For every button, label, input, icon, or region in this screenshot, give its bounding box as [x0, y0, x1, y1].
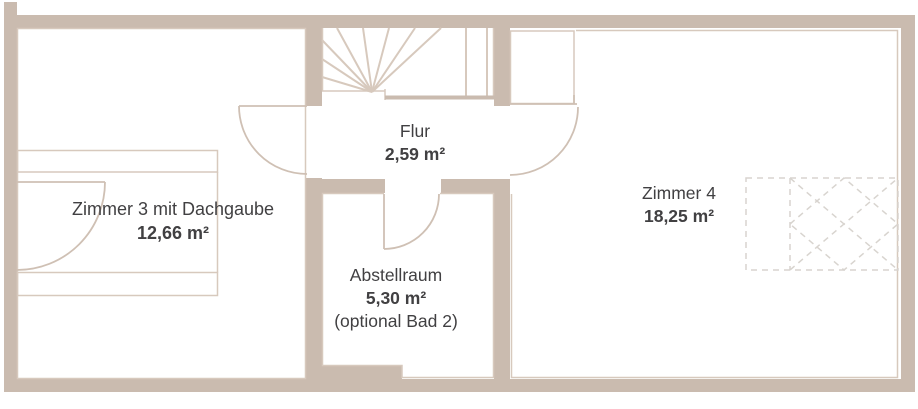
wall-flur-abstellraum-left: [306, 179, 385, 193]
roof-window-cross: [790, 178, 898, 270]
room-label-flur: Flur 2,59 m²: [385, 120, 445, 166]
wall-zimmer3-abstellraum: [306, 178, 322, 379]
room-area-abstellraum: 5,30 m²: [334, 287, 458, 310]
room-name-zimmer4: Zimmer 4: [642, 182, 716, 205]
wall-top: [4, 15, 915, 28]
staircase: [322, 28, 498, 100]
room-label-abstellraum: Abstellraum 5,30 m² (optional Bad 2): [334, 264, 458, 333]
room-label-zimmer3: Zimmer 3 mit Dachgaube 12,66 m²: [72, 198, 274, 246]
outer-walls: [4, 2, 915, 392]
stair-treads: [322, 28, 487, 97]
room-name-abstellraum: Abstellraum: [334, 264, 458, 287]
wall-abstellraum-zimmer4: [494, 182, 510, 379]
outline-landing-nook: [511, 31, 575, 104]
wall-left: [4, 2, 17, 392]
room-area-zimmer4: 18,25 m²: [642, 205, 716, 228]
wall-stair-left: [306, 28, 322, 106]
floor-plan: Flur 2,59 m² Zimmer 3 mit Dachgaube 12,6…: [0, 0, 918, 409]
wall-bottom: [4, 379, 915, 392]
door-abstellraum: [384, 194, 439, 249]
wall-stair-right: [494, 28, 510, 106]
door-zimmer4: [510, 95, 578, 175]
room-note-abstellraum: (optional Bad 2): [334, 310, 458, 333]
room-label-zimmer4: Zimmer 4 18,25 m²: [642, 182, 716, 228]
stair-lower-edge: [322, 89, 385, 100]
dormer-strip-bottom: [18, 273, 218, 296]
dormer-strip-top: [18, 151, 218, 173]
room-area-zimmer3: 12,66 m²: [72, 222, 274, 246]
roof-window-symbol: [746, 178, 898, 270]
door-zimmer3-flur: [239, 106, 307, 174]
wall-flur-abstellraum-right: [441, 179, 510, 193]
wall-step-abstellraum: [322, 366, 402, 379]
roof-window-frame: [746, 178, 898, 270]
wall-right: [901, 15, 915, 392]
room-name-zimmer3: Zimmer 3 mit Dachgaube: [72, 198, 274, 222]
room-name-flur: Flur: [385, 120, 445, 143]
room-area-flur: 2,59 m²: [385, 143, 445, 166]
